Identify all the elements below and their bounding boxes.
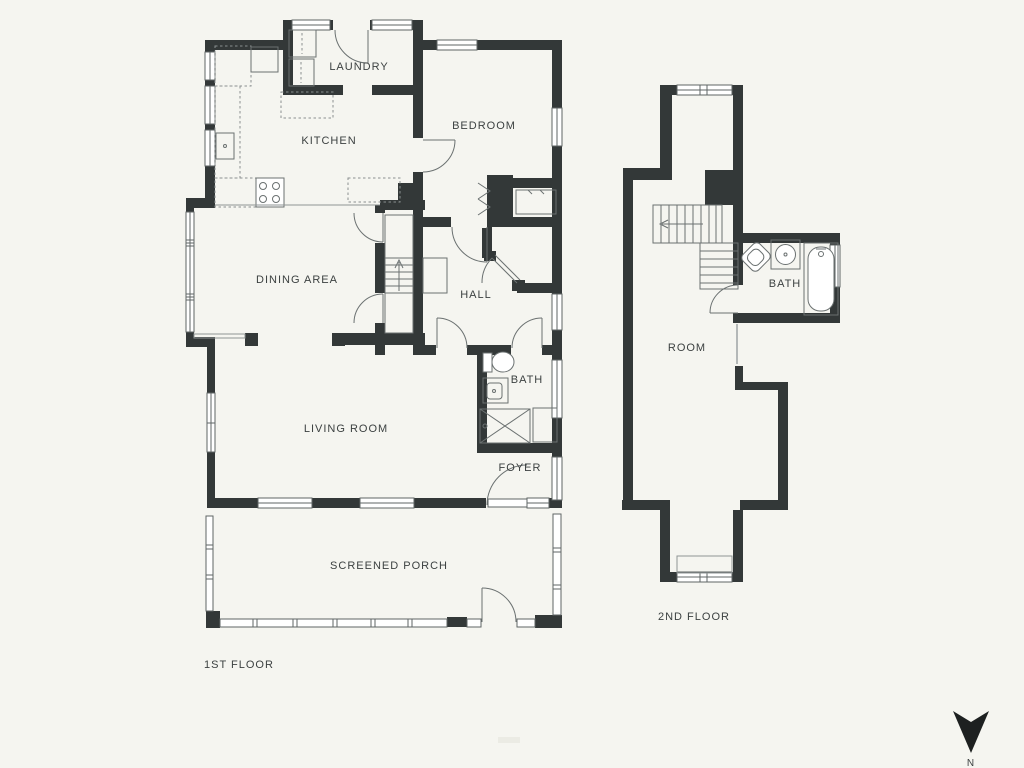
bedroom-closet [516, 190, 556, 214]
bath-fixtures-first [480, 352, 557, 443]
sink [771, 240, 800, 269]
room-label-living: LIVING ROOM [304, 423, 388, 435]
washer [289, 30, 316, 57]
room-label-porch: SCREENED PORCH [330, 560, 448, 572]
screen-band [553, 514, 561, 615]
bathtub [804, 243, 838, 315]
faint-watermark [498, 737, 520, 743]
vestibule-door [452, 227, 487, 262]
screen-band [517, 619, 535, 627]
floor-title-second: 2ND FLOOR [658, 611, 730, 623]
room-label-bedroom: BEDROOM [452, 120, 516, 132]
toilet [740, 241, 773, 274]
window [437, 40, 477, 50]
first-floor-plan: LAUNDRY KITCHEN BEDROOM DINING AREA HALL… [186, 19, 562, 671]
refrigerator [251, 47, 278, 72]
window-band [186, 212, 194, 332]
kitchen-sink [216, 133, 234, 159]
floor-plan-canvas: LAUNDRY KITCHEN BEDROOM DINING AREA HALL… [0, 0, 1024, 768]
hall-living-door [437, 318, 467, 348]
second-floor-walls [622, 85, 840, 582]
stove [256, 178, 284, 207]
room-label-dining: DINING AREA [256, 274, 338, 286]
window [205, 130, 215, 166]
room-label-kitchen: KITCHEN [301, 135, 356, 147]
stairs-down-arrow [660, 220, 703, 228]
north-arrow-icon [953, 711, 989, 753]
chimney-block [705, 170, 743, 205]
room-label-room: ROOM [668, 342, 706, 354]
window-seat [677, 556, 732, 573]
window [372, 20, 412, 30]
counter [281, 92, 333, 118]
shower [480, 409, 530, 443]
window [258, 498, 312, 508]
screen-band [467, 619, 481, 627]
floor-plan-page: LAUNDRY KITCHEN BEDROOM DINING AREA HALL… [0, 0, 1024, 768]
counter [348, 178, 400, 202]
window [552, 108, 562, 146]
first-floor-walls [186, 20, 562, 628]
counter [215, 46, 251, 86]
room-label-bath-first: BATH [511, 374, 544, 386]
laundry-fixtures [289, 30, 316, 86]
window [677, 85, 732, 95]
window [207, 393, 215, 452]
toilet [483, 352, 514, 372]
laundry-door [335, 30, 368, 63]
compass-north-label: N [967, 758, 975, 768]
window [360, 498, 414, 508]
room-label-bath-second: BATH [769, 278, 802, 290]
room-label-foyer: FOYER [499, 462, 542, 474]
understair-closet [423, 258, 447, 293]
counter [215, 86, 240, 178]
floor-title-first: 1ST FLOOR [204, 659, 274, 671]
window [292, 20, 330, 30]
porch-door [482, 588, 516, 622]
screen-band [206, 516, 213, 611]
window [205, 52, 215, 80]
second-floor-plan: BATH ROOM 2ND FLOOR [622, 85, 840, 623]
counter [215, 178, 256, 207]
window [552, 294, 562, 330]
stairs-second-floor [653, 205, 738, 289]
window [552, 457, 562, 500]
window [205, 86, 215, 124]
closet-shelf [516, 190, 556, 214]
hall-bath-door [512, 318, 542, 348]
first-floor-doors [335, 30, 542, 622]
room-label-hall: HALL [460, 289, 492, 301]
room-label-laundry: LAUNDRY [329, 61, 388, 73]
bedroom-door [423, 140, 455, 172]
window [527, 498, 549, 508]
screen-band [220, 619, 447, 627]
compass: N [953, 711, 989, 768]
